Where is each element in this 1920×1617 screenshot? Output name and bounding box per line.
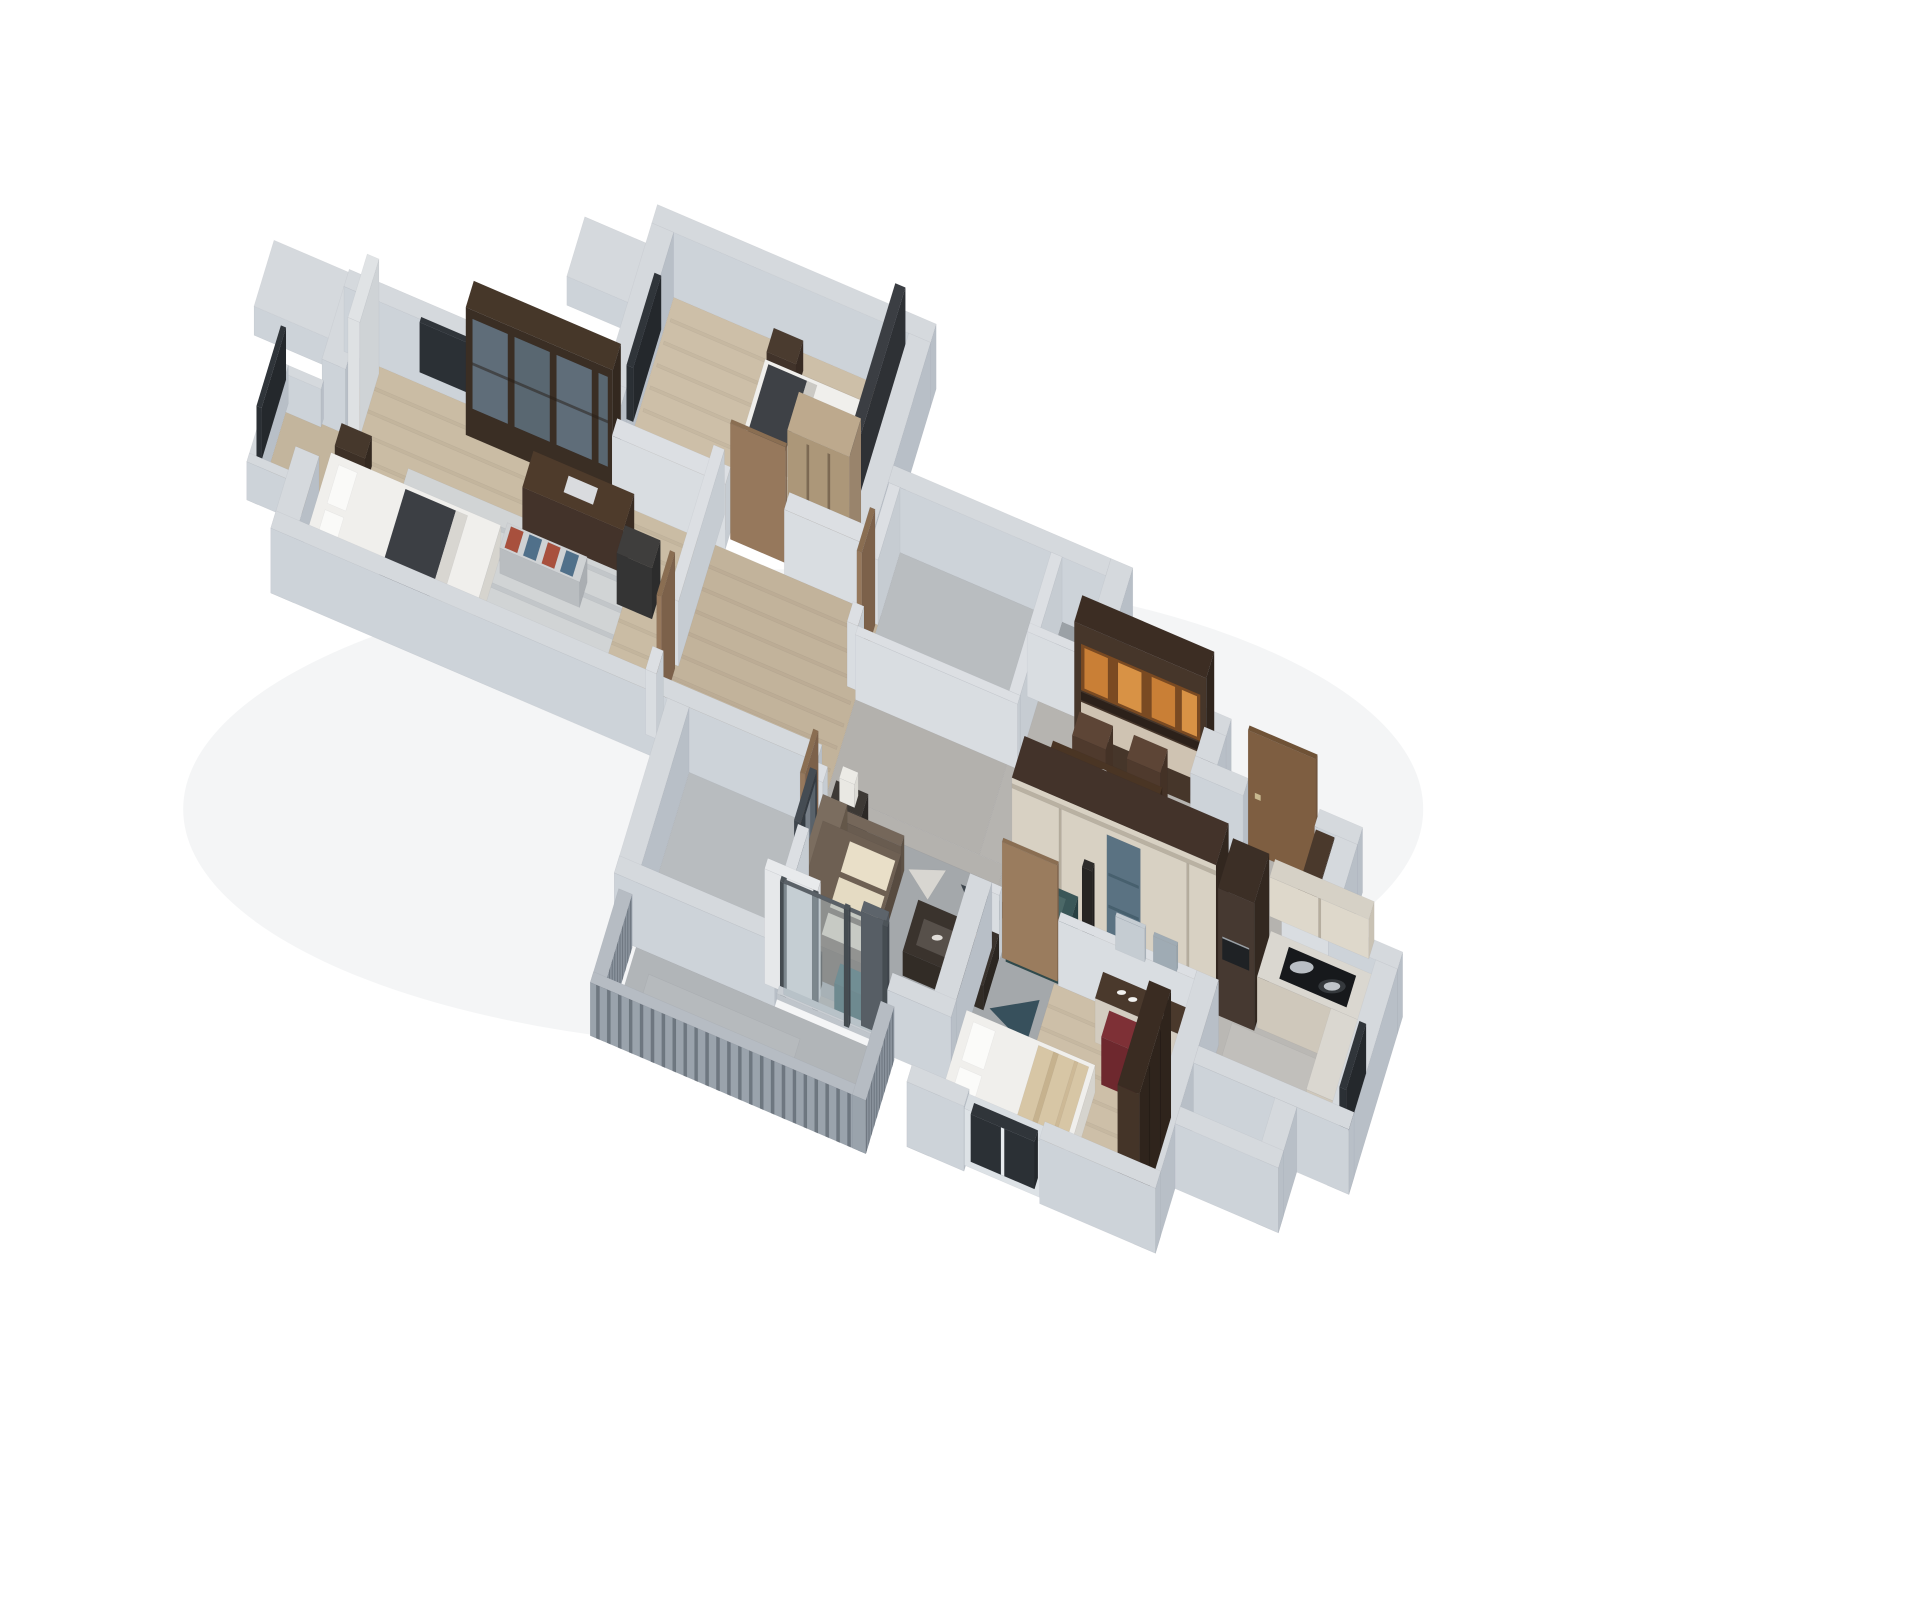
floorplan-render-stage (0, 0, 1920, 1617)
railing-slat (629, 999, 632, 1054)
railing-slat (738, 1046, 741, 1101)
balcony-railing-east-south-face (852, 1095, 865, 1154)
balcony-door-mullion-3-south-face (844, 909, 849, 1028)
kitchen-counter-north-top-decal (1290, 961, 1314, 973)
railing-slat (882, 1046, 883, 1102)
door-bedroom2-south-face (730, 423, 785, 563)
railing-slat (673, 1018, 676, 1073)
storage-wardrobe-run-front-decal (1187, 863, 1190, 977)
railing-slat (879, 1054, 880, 1110)
living-lamp-north (839, 766, 858, 808)
wall-bedroom3-north-a-east-face (999, 887, 1002, 961)
railing-slat (640, 1004, 643, 1059)
kitchen-counter-north-top-decal (1324, 982, 1340, 991)
kitchen-upper-cabinets-front-decal (1318, 898, 1321, 939)
railing-slat (618, 994, 621, 1049)
master-desk-chair (617, 525, 661, 619)
railing-slat (596, 985, 599, 1040)
railing-slat (622, 925, 623, 981)
railing-slat (716, 1036, 719, 1091)
railing-slat (627, 908, 628, 964)
railing-slat (826, 1083, 829, 1138)
railing-slat (760, 1055, 763, 1110)
railing-slat (705, 1032, 708, 1087)
master-curtain-south-face (348, 317, 360, 437)
door-bedroom3 (1002, 838, 1059, 982)
window-bedroom2-south-face (627, 365, 634, 422)
bay-window-frame-south-face (257, 406, 262, 460)
bedroom3-vanity-desk-top-decal (1128, 997, 1137, 1002)
railing-slat (866, 1097, 867, 1153)
railing-slat (874, 1071, 875, 1127)
wall-master-west-a-south-face (322, 359, 346, 434)
railing-slat (620, 933, 621, 989)
railing-slat (884, 1037, 885, 1093)
railing-slat (836, 1088, 839, 1143)
bedroom3-wall-art-1-east-face (1145, 925, 1146, 962)
railing-slat (630, 899, 631, 955)
railing-slat (876, 1063, 877, 1119)
window-bedroom3-glass-front-decal (1001, 1127, 1004, 1176)
railing-slat (727, 1041, 730, 1096)
railing-slat (782, 1064, 785, 1119)
bedroom3-wall-art-2-east-face (1177, 942, 1178, 972)
bedroom3-wardrobe-side-decal (1160, 1030, 1161, 1148)
bedroom3-vanity-desk-top-decal (1117, 990, 1126, 995)
apartment-3d-floorplan (0, 0, 1920, 1617)
door-bedroom3-south-face (1002, 842, 1057, 982)
railing-slat (892, 1011, 893, 1067)
balcony-door-mullion-3 (844, 903, 851, 1028)
railing-slat (662, 1013, 665, 1068)
railing-slat (889, 1020, 890, 1076)
wall-master-east-b-south-face (646, 669, 657, 739)
railing-slat (804, 1074, 807, 1129)
railing-slat (847, 1092, 850, 1147)
railing-slat (771, 1060, 774, 1115)
railing-slat (793, 1069, 796, 1124)
living-coffee-table-top-decal (932, 935, 943, 941)
railing-slat (887, 1028, 888, 1084)
railing-slat (749, 1050, 752, 1105)
dining-wine-cabinet-front-decal (1182, 690, 1197, 737)
railing-slat (815, 1078, 818, 1133)
balcony-door-mullion-3-east-face (849, 906, 851, 1028)
railing-slat (651, 1008, 654, 1063)
railing-slat (871, 1080, 872, 1136)
railing-slat (869, 1089, 870, 1145)
railing-slat (625, 916, 626, 972)
railing-slat (695, 1027, 698, 1082)
railing-slat (684, 1022, 687, 1077)
door-bedroom2 (730, 419, 787, 563)
railing-slat (607, 990, 610, 1045)
